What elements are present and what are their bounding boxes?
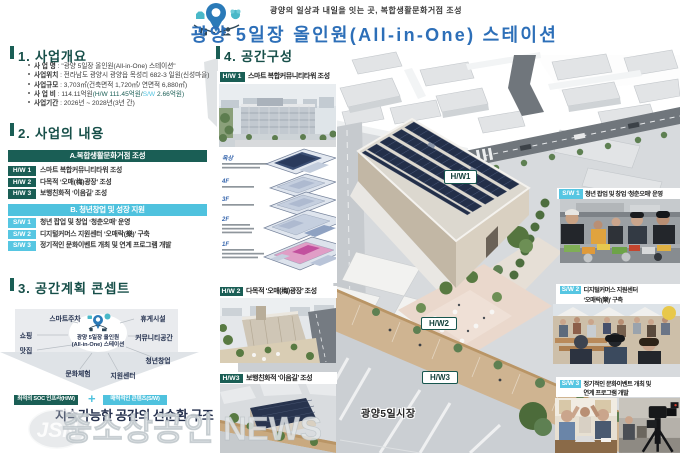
svg-text:스마트주차: 스마트주차	[49, 314, 81, 323]
svg-text:3F: 3F	[222, 197, 229, 203]
svg-text:2F: 2F	[221, 217, 229, 223]
svg-text:맛집: 맛집	[20, 346, 33, 355]
svg-text:4F: 4F	[221, 179, 229, 185]
svg-text:광양 5일장 올인원: 광양 5일장 올인원	[77, 333, 119, 341]
svg-text:휴게시설: 휴게시설	[140, 314, 165, 323]
svg-text:커뮤니티공간: 커뮤니티공간	[135, 333, 173, 342]
svg-text:지원센터: 지원센터	[110, 371, 135, 380]
svg-text:중소상공인 NEWS: 중소상공인 NEWS	[62, 410, 322, 447]
svg-text:문화체험: 문화체험	[65, 369, 90, 378]
svg-text:쇼핑: 쇼핑	[20, 331, 33, 340]
svg-text:(All-in-One) 스테이션: (All-in-One) 스테이션	[72, 340, 125, 348]
svg-text:옥상: 옥상	[222, 154, 235, 162]
svg-text:청년창업: 청년창업	[145, 356, 170, 365]
svg-text:1F: 1F	[222, 242, 229, 248]
